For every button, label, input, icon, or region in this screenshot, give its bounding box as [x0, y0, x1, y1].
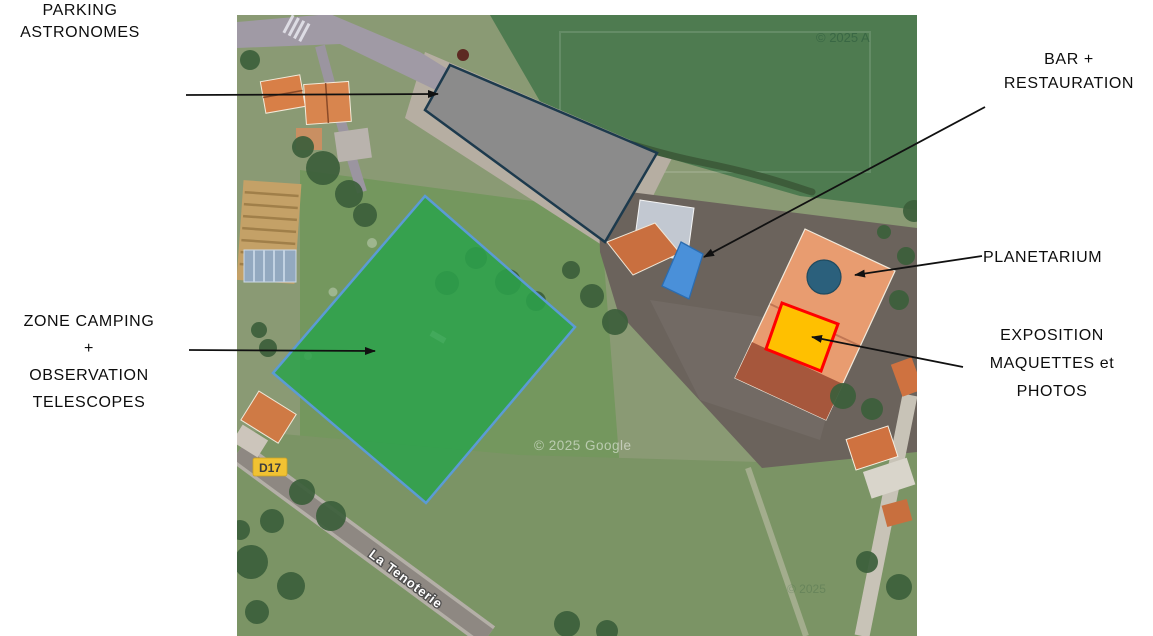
road-badge-d17: D17: [253, 458, 287, 476]
zone-planetarium: [807, 260, 841, 294]
planetarium-label: PLANETARIUM: [983, 246, 1143, 270]
bar-label-line: RESTAURATION: [988, 72, 1150, 96]
road-badge-text: D17: [259, 461, 281, 475]
planetarium-label-line: PLANETARIUM: [983, 246, 1143, 270]
camping-label-line: OBSERVATION: [3, 362, 175, 389]
parking-label-line: ASTRONOMES: [0, 22, 160, 44]
camping-label-line: +: [3, 335, 175, 362]
camping-label-line: ZONE CAMPING: [3, 308, 175, 335]
arrow-camping: [189, 350, 375, 351]
exposition-label-line: MAQUETTES et: [965, 350, 1139, 378]
camping-label-line: TELESCOPES: [3, 389, 175, 416]
house-roof: [304, 81, 352, 124]
small-structure: [457, 49, 469, 61]
house-roof: [334, 128, 372, 162]
exposition-label-line: PHOTOS: [965, 378, 1139, 406]
greenhouse: [244, 250, 296, 282]
bar-label: BAR + RESTAURATION: [988, 48, 1150, 96]
field-mark: [367, 238, 377, 248]
exposition-label: EXPOSITION MAQUETTES et PHOTOS: [965, 322, 1139, 406]
exposition-label-line: EXPOSITION: [965, 322, 1139, 350]
parking-label: PARKING ASTRONOMES: [0, 0, 160, 44]
imagery-watermark-top: © 2025 A: [816, 30, 870, 45]
arrow-parking: [186, 94, 438, 95]
bar-label-line: BAR +: [988, 48, 1150, 72]
google-watermark: © 2025 Google: [534, 438, 632, 453]
field-mark: [329, 288, 338, 297]
camping-label: ZONE CAMPING + OBSERVATION TELESCOPES: [3, 308, 175, 416]
parking-label-line: PARKING: [0, 0, 160, 22]
annotated-site-map: D17 © 2025 Google © 2025 A © 2025 La Ten…: [0, 0, 1153, 636]
imagery-watermark-bottom: © 2025: [787, 582, 826, 596]
